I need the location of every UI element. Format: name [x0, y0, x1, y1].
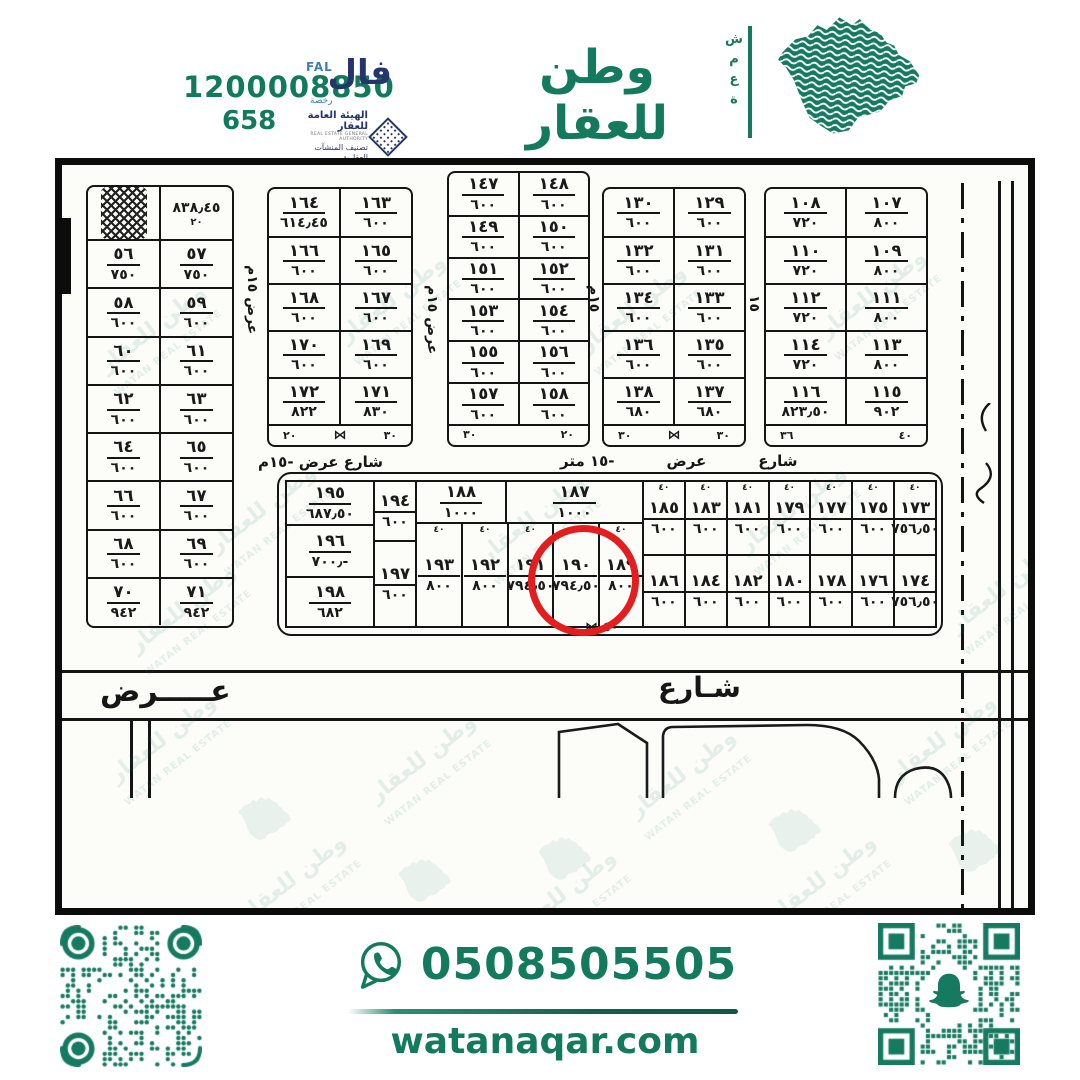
map-edge-mark	[62, 218, 71, 294]
plot-cell: ٧٠٩٤٢	[88, 579, 159, 625]
plot-cell: ١٩٦٧٠٠٫-	[285, 524, 375, 578]
plot-cell: ٦٣٦٠٠	[159, 386, 232, 432]
whatsapp-icon	[353, 937, 407, 991]
plot-cell: ١٤٧٦٠٠	[449, 173, 518, 215]
plot-cell: ١٥٢٦٠٠	[518, 259, 589, 299]
plot-cell: ١٧٠٦٠٠	[269, 332, 339, 377]
plot-cell: ١٥٦٦٠٠	[518, 342, 589, 382]
plot-cell: ٨٣٨٫٤٥٢٠	[159, 187, 232, 239]
plot-cell: ١٧٨٦٠٠	[809, 554, 853, 628]
block-dimension-strip: ٣٠⋈٣٠	[604, 424, 744, 444]
license-number-small: 658	[222, 106, 276, 136]
plot-cell: ١٥٥٦٠٠	[449, 342, 518, 382]
plot-blockD: ١٣٠٦٠٠١٢٩٦٠٠١٣٢٦٠٠١٣١٦٠٠١٣٤٦٠٠١٣٣٦٠٠١٣٦٦…	[602, 187, 746, 447]
plot-cell: ١٩٤٦٠٠	[373, 480, 417, 542]
plot-cell: ٦٠٦٠٠	[88, 338, 159, 384]
watermark-map-icon	[942, 825, 1012, 877]
brand-name-arabic: وطن للعقار	[482, 40, 712, 153]
highlight-circle-plot-190	[528, 525, 639, 636]
plot-cell: ١٣٦٦٠٠	[604, 332, 673, 377]
plot-cell: ٥٩٦٠٠	[159, 289, 232, 335]
plot-cell: ١٧٤٧٥٦٫٥٠	[893, 554, 937, 628]
plot-cell: ١٧٧٦٠٠٤٠	[809, 480, 853, 556]
plot-cell: ١٧٢٨٢٢	[269, 379, 339, 424]
plot-cell: ١٨٨١٠٠٠	[415, 480, 507, 524]
plot-cell: ١٤٨٦٠٠	[518, 173, 589, 215]
real-estate-authority-logo: الهيئة العامة للعقار REAL ESTATE GENERAL…	[292, 110, 402, 164]
qr-code-left	[60, 925, 202, 1071]
plot-cell: ٦٧٦٠٠	[159, 482, 232, 528]
plot-cell: ١٤٩٦٠٠	[449, 217, 518, 257]
plot-cell: ١٥٨٦٠٠	[518, 384, 589, 424]
street-label-mid: شارععرض-١٥ متر	[560, 452, 798, 470]
plot-cell: ١٧٥٦٠٠٤٠	[851, 480, 895, 556]
plot-cell: ١٠٧٨٠٠	[845, 189, 926, 236]
watermark-map-icon	[392, 855, 462, 907]
plot-cell: ١١٤٧٢٠	[766, 332, 845, 377]
plot-cell: ١٥٣٦٠٠	[449, 300, 518, 340]
saudi-map-logo	[760, 8, 950, 146]
plot-cell: ١٣٥٦٠٠	[673, 332, 744, 377]
plot-cell: ١١١٨٠٠	[845, 285, 926, 330]
street-label-under-blockB: شارع عرض -١٥م	[258, 453, 383, 471]
plot-cell: ١٥٧٦٠٠	[449, 384, 518, 424]
plot-cell: ١٣٨٦٨٠	[604, 379, 673, 424]
mosque-plot-hatched	[101, 187, 147, 239]
plot-cell: ١٠٩٨٠٠	[845, 238, 926, 283]
watermark-map-icon	[762, 805, 832, 857]
plot-cell: ٦٤٦٠٠	[88, 434, 159, 480]
plot-cell: ٥٦٧٥٠	[88, 241, 159, 287]
watermark: وطن للعقارWATAN REAL ESTATE	[941, 539, 1028, 660]
plot-cell: ٦١٦٠٠	[159, 338, 232, 384]
plot-cell: ٥٧٧٥٠	[159, 241, 232, 287]
plot-cell: ١١٦٨٢٣٫٥٠	[766, 379, 845, 424]
plot-cell: ١١٢٧٢٠	[766, 285, 845, 330]
plot-cell: ١٨٤٦٠٠	[684, 554, 728, 628]
header: 1200008850 658 FAL فال رخصة الهيئة العام…	[0, 0, 1080, 158]
plot-map-frame: عـــــرض شـارع شارع عرض -١٥م شارععرض-١٥ …	[55, 158, 1035, 915]
street-label-vertical-1: عرض ١٥م	[244, 265, 260, 334]
block-dimension-strip: ٣٦٤٠	[766, 424, 926, 444]
plot-cell: ١٥٠٦٠٠	[518, 217, 589, 257]
plot-cell: ١٧١٨٣٠	[339, 379, 411, 424]
plot-cell: ١٦٧٦٠٠	[339, 285, 411, 330]
plot-cell: ١٦٣٦٠٠	[339, 189, 411, 236]
qr-code-snapchat	[878, 923, 1020, 1069]
plot-cell: ١٨٣٦٠٠٤٠	[684, 480, 728, 556]
brand-lockup: وطن للعقار WATAN REAL ESTATE	[482, 40, 712, 174]
plot-cell: ٧١٩٤٢	[159, 579, 232, 625]
plot-cell: ١٥١٦٠٠	[449, 259, 518, 299]
authority-name-ar: الهيئة العامة للعقار	[292, 110, 368, 132]
plot-cell: ٦٢٦٠٠	[88, 386, 159, 432]
fal-arabic-label: فال	[327, 56, 392, 90]
plot-blockC: ١٤٧٦٠٠١٤٨٦٠٠١٤٩٦٠٠١٥٠٦٠٠١٥١٦٠٠١٥٢٦٠٠١٥٣٦…	[447, 171, 590, 447]
poster-page: 1200008850 658 FAL فال رخصة الهيئة العام…	[0, 0, 1080, 1080]
street-label-vertical-4: ١٥	[746, 295, 762, 312]
plot-cell: ١٦٤٦١٤٫٤٥	[269, 189, 339, 236]
plot-cell: ١٣٢٦٠٠	[604, 238, 673, 283]
plot-cell: ١١٣٨٠٠	[845, 332, 926, 377]
plot-blockB: ١٦٤٦١٤٫٤٥١٦٣٦٠٠١٦٦٦٠٠١٦٥٦٠٠١٦٨٦٠٠١٦٧٦٠٠١…	[267, 187, 413, 447]
plot-cell: ١٩٢٨٠٠٤٠	[461, 522, 509, 628]
plot-cell: ١٨١٦٠٠٤٠	[726, 480, 770, 556]
plot-cell: ١٨٧١٠٠٠	[505, 480, 644, 524]
footer: 0508505505 watanaqar.com	[0, 915, 1080, 1080]
plot-cell: ٥٨٦٠٠	[88, 289, 159, 335]
boundary-hook-mark	[970, 403, 996, 523]
plot-cell: ١٦٦٦٠٠	[269, 238, 339, 283]
plot-cell: ١٣٣٦٠٠	[673, 285, 744, 330]
block-dimension-strip: ٣٠٢٠	[449, 424, 588, 444]
plot-cell: ١٧٦٦٠٠	[851, 554, 895, 628]
main-street-line-top	[62, 670, 1028, 673]
watermark-map-icon	[532, 833, 602, 885]
plot-cell: ١٩٧٦٠٠	[373, 540, 417, 628]
plot-cell: ١١٥٩٠٢	[845, 379, 926, 424]
plot-cell: ١٧٣٧٥٦٫٥٠٤٠	[893, 480, 937, 556]
plot-cell: ٦٦٦٠٠	[88, 482, 159, 528]
whatsapp-number: 0508505505	[421, 939, 737, 990]
watermark-map-icon	[232, 793, 302, 845]
website-url: watanaqar.com	[350, 1021, 740, 1062]
plot-cell: ١٣٤٦٠٠	[604, 285, 673, 330]
plot-cell: ١٠٨٧٢٠	[766, 189, 845, 236]
brand-divider-bar	[748, 26, 752, 138]
plot-cell: ١٦٩٦٠٠	[339, 332, 411, 377]
plot-cell: ١٣١٦٠٠	[673, 238, 744, 283]
plot-cell: ٦٨٦٠٠	[88, 531, 159, 577]
plot-cell: ١٨٦٦٠٠	[642, 554, 686, 628]
plot-blockE: ١٠٨٧٢٠١٠٧٨٠٠١١٠٧٢٠١٠٩٨٠٠١١٢٧٢٠١١١٨٠٠١١٤٧…	[764, 187, 928, 447]
plot-cell: ١٦٨٦٠٠	[269, 285, 339, 330]
plot-cell: ١٢٩٦٠٠	[673, 189, 744, 236]
authority-diamond-icon	[368, 117, 408, 157]
plot-cell: ١٥٤٦٠٠	[518, 300, 589, 340]
street-label-share: شـارع	[658, 671, 741, 704]
plot-cell: ١٨٠٦٠٠	[768, 554, 812, 628]
plot-cell: ٦٥٦٠٠	[159, 434, 232, 480]
boundary-line-2	[1011, 181, 1014, 908]
plot-cell: ١٦٥٦٠٠	[339, 238, 411, 283]
plot-cell: ١٧٩٦٠٠٤٠	[768, 480, 812, 556]
plot-cell: ١١٠٧٢٠	[766, 238, 845, 283]
plot-cell: ١٣٠٦٠٠	[604, 189, 673, 236]
fal-logo: FAL فال رخصة	[306, 56, 392, 108]
plot-cell: ٦٩٦٠٠	[159, 531, 232, 577]
boundary-dashdot-line	[961, 183, 964, 908]
plot-cell: ١٣٧٦٨٠	[673, 379, 744, 424]
footer-divider	[348, 1009, 738, 1014]
plot-cell: ١٩٨٦٨٢	[285, 576, 375, 628]
plot-map: عـــــرض شـارع شارع عرض -١٥م شارععرض-١٥ …	[62, 165, 1028, 908]
plot-cell: ١٩٣٨٠٠٤٠	[415, 522, 463, 628]
brand-vertical-word: شمعة	[724, 30, 744, 111]
plot-blockA: ٨٣٨٫٤٥٢٠٥٦٧٥٠٥٧٧٥٠٥٨٦٠٠٥٩٦٠٠٦٠٦٠٠٦١٦٠٠٦٢…	[86, 185, 234, 628]
authority-name-en: REAL ESTATE GENERAL AUTHORITY	[292, 132, 368, 143]
block-dimension-strip: ٢٠⋈٣٠	[269, 424, 411, 444]
plot-cell: ١٨٢٦٠٠	[726, 554, 770, 628]
fal-license-label: رخصة	[310, 96, 333, 106]
plot-cell: ١٨٥٦٠٠٤٠	[642, 480, 686, 556]
plot-cell: ١٩٥٦٨٧٫٥٠	[285, 480, 375, 526]
boundary-line-1	[998, 181, 1001, 908]
